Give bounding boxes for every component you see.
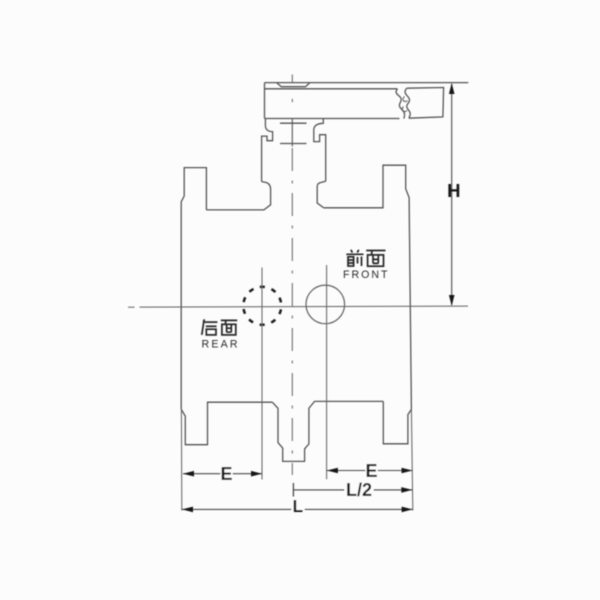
svg-text:L/2: L/2: [346, 480, 372, 500]
svg-text:L: L: [292, 496, 303, 516]
svg-text:REAR: REAR: [202, 339, 240, 351]
svg-text:FRONT: FRONT: [343, 269, 389, 281]
svg-text:H: H: [447, 180, 460, 201]
svg-text:E: E: [365, 461, 377, 481]
svg-text:E: E: [220, 464, 232, 484]
